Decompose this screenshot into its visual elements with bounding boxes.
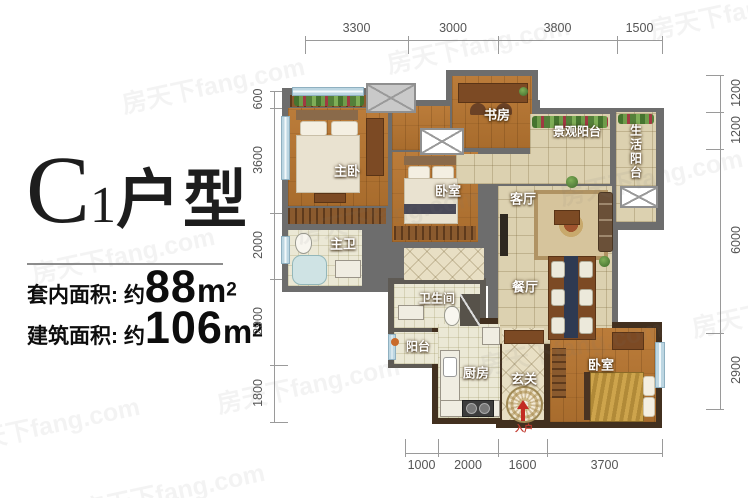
sofa (598, 192, 613, 252)
master-bath-tub (292, 255, 327, 285)
bedroom3-dresser (612, 332, 644, 350)
master-bed-headboard (296, 110, 358, 120)
dimension-label-bottom: 2000 (438, 458, 498, 472)
shelf-plants (294, 95, 364, 106)
bedroom3-window (655, 342, 665, 388)
bedroom3-pillow (643, 397, 655, 417)
dimension-label-left: 3600 (251, 130, 265, 190)
coffee-table (554, 210, 580, 225)
watermark: 房天下fang.com (0, 387, 143, 461)
label-view-balcony: 景观阳台 (553, 123, 601, 140)
dimension-tick (706, 409, 724, 410)
gross-area-unit: m (223, 313, 252, 350)
bedroom2-wardrobe (394, 226, 476, 240)
dimension-tick (498, 36, 499, 54)
inner-area-sup: 2 (226, 280, 237, 301)
gross-area-label: 建筑面积: 约 (27, 325, 145, 348)
tv-console (500, 214, 508, 256)
bedroom3-pillow (643, 376, 655, 396)
entry-arrow-stem (521, 409, 525, 421)
dimension-line-left (274, 91, 275, 422)
bedroom3-wardrobe (552, 348, 566, 398)
balcony-flower (391, 338, 399, 346)
study-plant (519, 87, 528, 96)
balcony-plant (566, 176, 578, 188)
master-dresser (366, 118, 384, 176)
master-bedroom-window (281, 116, 290, 180)
dining-chair (579, 317, 593, 334)
bedroom2-headboard (404, 156, 456, 165)
label-balcony: 阳台 (406, 338, 430, 355)
dimension-tick (270, 422, 288, 423)
label-study: 书房 (484, 105, 510, 124)
label-master-bath: 主卫 (330, 234, 356, 253)
label-kitchen: 厨房 (463, 363, 489, 382)
dimension-tick (405, 439, 406, 457)
watermark: 房天下fang.com (78, 453, 268, 498)
dimension-label-left: 2900 (251, 291, 265, 351)
flue-box-life-balcony (620, 186, 658, 208)
label-life-balcony: 生活阳台 (628, 124, 645, 180)
dimension-line-top (305, 40, 662, 41)
dimension-tick (305, 36, 306, 54)
stove-burner (479, 403, 490, 414)
living-rug (534, 190, 608, 260)
dimension-label-right: 2900 (729, 340, 743, 400)
plan-title-number: 1 (90, 177, 116, 234)
label-foyer: 玄关 (511, 369, 537, 388)
bathroom-toilet (444, 306, 460, 326)
entry-label: 入户 (515, 422, 533, 435)
study-desk (458, 83, 528, 103)
room-corridor (404, 248, 484, 280)
dimension-tick (547, 439, 548, 457)
watermark: 房天下fang.com (213, 347, 403, 421)
dimension-tick (706, 75, 724, 76)
bedroom2-throw (404, 204, 456, 214)
foyer-console (504, 330, 544, 344)
entry-arrow-icon (517, 400, 529, 409)
life-balcony-plants (618, 114, 654, 124)
watermark: 房天下fang.com (118, 47, 308, 121)
label-bedroom-2: 卧室 (435, 181, 461, 200)
dimension-line-right (720, 75, 721, 409)
dining-runner (564, 256, 578, 338)
label-dining-room: 餐厅 (512, 277, 538, 296)
dimension-tick (706, 112, 724, 113)
dimension-label-bottom: 3700 (547, 458, 662, 472)
master-bath-vanity (335, 260, 361, 278)
dining-chair (551, 289, 565, 306)
master-bath-window (281, 236, 290, 264)
dining-chair (579, 289, 593, 306)
living-plant (599, 256, 610, 267)
flue-box-top (366, 83, 416, 113)
dimension-label-left: 600 (251, 69, 265, 129)
dimension-tick (706, 333, 724, 334)
dimension-label-right: 6000 (729, 210, 743, 270)
dimension-tick (498, 439, 499, 457)
floorplan-page: 房天下fang.com房天下fang.com房天下fang.com房天下fang… (0, 0, 748, 498)
master-bed-pillow (331, 121, 358, 136)
dimension-tick (662, 439, 663, 457)
dimension-tick (617, 36, 618, 54)
gross-area-value: 106 (145, 302, 223, 353)
dimension-tick (706, 149, 724, 150)
label-master-bedroom: 主卧 (334, 161, 360, 180)
dimension-label-top: 3300 (305, 21, 408, 35)
dimension-line-bottom (405, 453, 662, 454)
bedroom3-bed (590, 372, 644, 422)
label-bedroom-3: 卧室 (588, 355, 614, 374)
dimension-label-top: 3000 (408, 21, 498, 35)
label-bathroom: 卫生间 (419, 290, 455, 307)
dining-chair (551, 261, 565, 278)
view-balcony-arm (456, 154, 532, 184)
dimension-label-top: 1500 (617, 21, 662, 35)
flue-box-hall (420, 128, 464, 155)
shower-stall (460, 294, 480, 326)
master-bed-pillow (300, 121, 327, 136)
dimension-label-left: 1800 (251, 363, 265, 423)
dimension-tick (438, 439, 439, 457)
dimension-tick (270, 365, 288, 366)
dining-chair (551, 317, 565, 334)
master-wardrobe (288, 208, 386, 224)
dining-chair (579, 261, 593, 278)
plan-title-letter: C (26, 136, 90, 243)
fridge (482, 327, 500, 345)
bathroom-vanity (398, 305, 424, 320)
area-line-gross: 建筑面积: 约106m2 (27, 302, 263, 354)
dimension-tick (662, 36, 663, 54)
dimension-label-bottom: 1000 (405, 458, 438, 472)
stove-burner (466, 403, 477, 414)
dimension-label-left: 2000 (251, 215, 265, 275)
dimension-label-top: 3800 (498, 21, 617, 35)
label-living-room: 客厅 (510, 189, 536, 208)
plan-title-suffix: 户型 (116, 165, 250, 236)
kitchen-sink (443, 357, 457, 377)
dimension-label-right: 1200 (729, 100, 743, 160)
dimension-label-bottom: 1600 (498, 458, 547, 472)
master-top-window (292, 87, 364, 96)
master-bed-bench (314, 193, 346, 203)
master-bath-toilet (295, 233, 312, 254)
plan-title: C1户型 (26, 142, 250, 241)
dimension-tick (408, 36, 409, 54)
